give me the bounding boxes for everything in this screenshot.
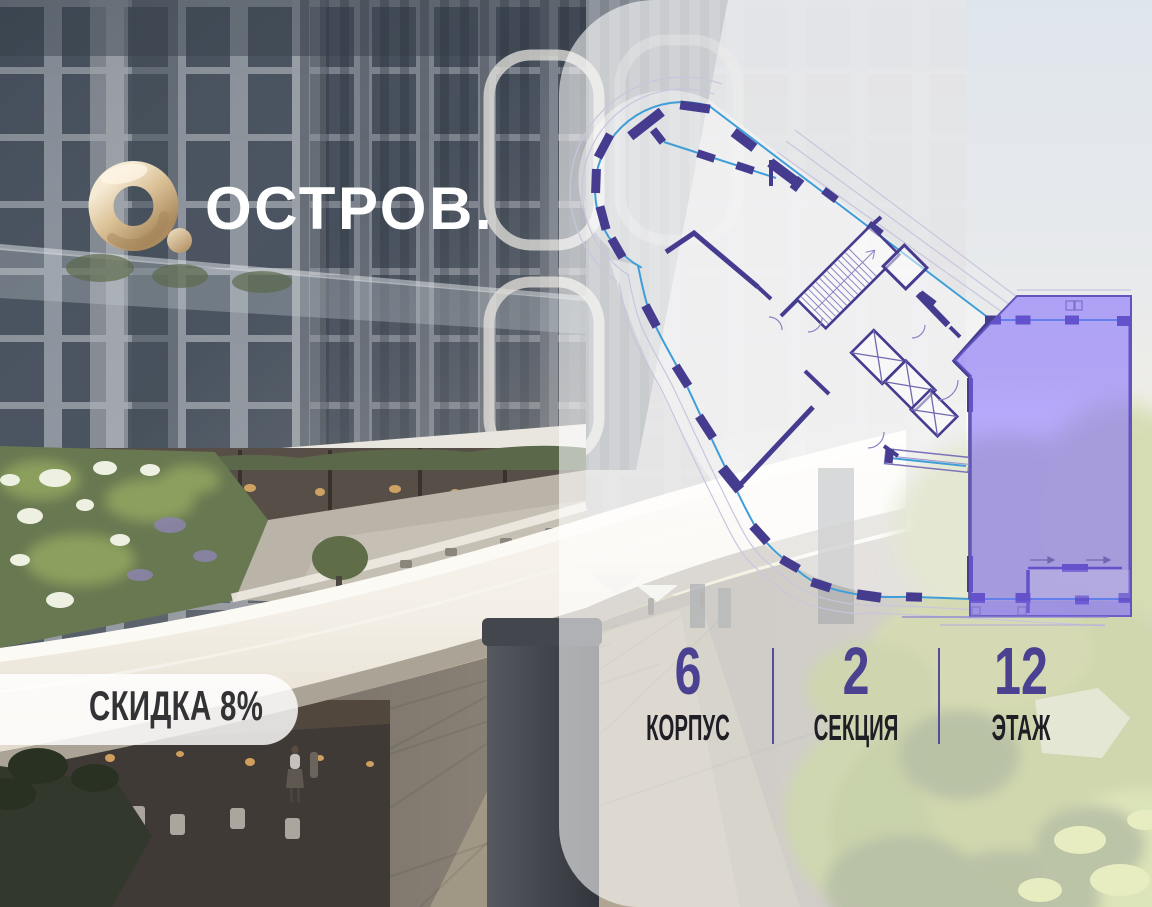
svg-text:ОСТРОВ.: ОСТРОВ. xyxy=(205,175,494,242)
